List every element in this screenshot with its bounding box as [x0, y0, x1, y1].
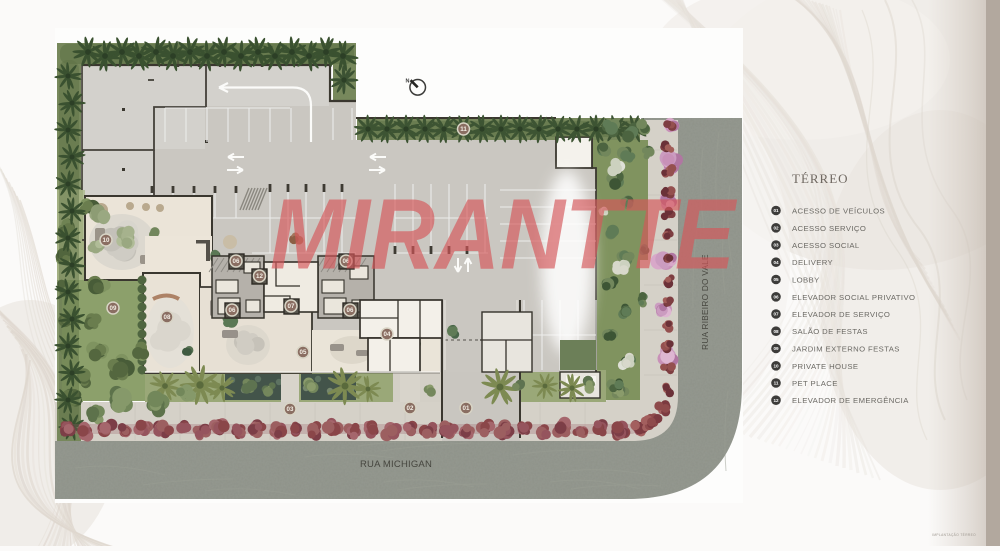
svg-text:RUA MICHIGAN: RUA MICHIGAN [360, 459, 432, 470]
svg-text:06: 06 [773, 294, 779, 299]
svg-text:09: 09 [110, 305, 117, 312]
svg-text:SALÃO DE FESTAS: SALÃO DE FESTAS [792, 327, 868, 336]
svg-text:11: 11 [774, 381, 779, 386]
svg-text:05: 05 [773, 277, 779, 282]
svg-text:07: 07 [288, 303, 295, 310]
svg-text:02: 02 [407, 405, 414, 412]
svg-text:ELEVADOR SOCIAL PRIVATIVO: ELEVADOR SOCIAL PRIVATIVO [792, 293, 915, 302]
svg-text:02: 02 [773, 225, 779, 230]
svg-text:ELEVADOR DE SERVIÇO: ELEVADOR DE SERVIÇO [792, 310, 890, 319]
svg-text:06: 06 [347, 307, 354, 314]
svg-text:ACESSO SOCIAL: ACESSO SOCIAL [792, 241, 860, 250]
svg-text:09: 09 [773, 346, 779, 351]
svg-text:LOBBY: LOBBY [792, 276, 820, 285]
svg-text:ACESSO DE VEÍCULOS: ACESSO DE VEÍCULOS [792, 207, 885, 216]
svg-text:01: 01 [773, 208, 779, 213]
svg-text:06: 06 [229, 307, 236, 314]
svg-text:ELEVADOR DE EMERGÊNCIA: ELEVADOR DE EMERGÊNCIA [792, 396, 909, 405]
svg-text:11: 11 [460, 126, 467, 133]
svg-text:DELIVERY: DELIVERY [792, 258, 833, 267]
svg-text:07: 07 [773, 312, 779, 317]
svg-text:03: 03 [287, 406, 294, 413]
svg-text:04: 04 [773, 260, 779, 265]
svg-text:04: 04 [384, 331, 391, 338]
svg-text:08: 08 [773, 329, 779, 334]
svg-text:06: 06 [233, 258, 240, 265]
svg-text:10: 10 [103, 237, 110, 244]
svg-text:08: 08 [164, 314, 171, 321]
svg-text:ACESSO SERVIÇO: ACESSO SERVIÇO [792, 224, 866, 233]
svg-text:12: 12 [256, 273, 263, 280]
svg-text:05: 05 [300, 349, 307, 356]
svg-text:10: 10 [773, 363, 779, 368]
svg-text:MIRANTTE: MIRANTTE [270, 179, 737, 290]
svg-text:N: N [406, 79, 410, 85]
svg-text:03: 03 [773, 243, 779, 248]
svg-text:01: 01 [463, 405, 470, 412]
svg-text:PET PLACE: PET PLACE [792, 379, 838, 388]
svg-text:JARDIM EXTERNO FESTAS: JARDIM EXTERNO FESTAS [792, 345, 900, 354]
svg-text:IMPLANTAÇÃO TÉRREO: IMPLANTAÇÃO TÉRREO [932, 532, 976, 537]
svg-text:12: 12 [773, 398, 779, 403]
svg-text:TÉRREO: TÉRREO [792, 171, 849, 186]
svg-text:PRIVATE HOUSE: PRIVATE HOUSE [792, 362, 858, 371]
